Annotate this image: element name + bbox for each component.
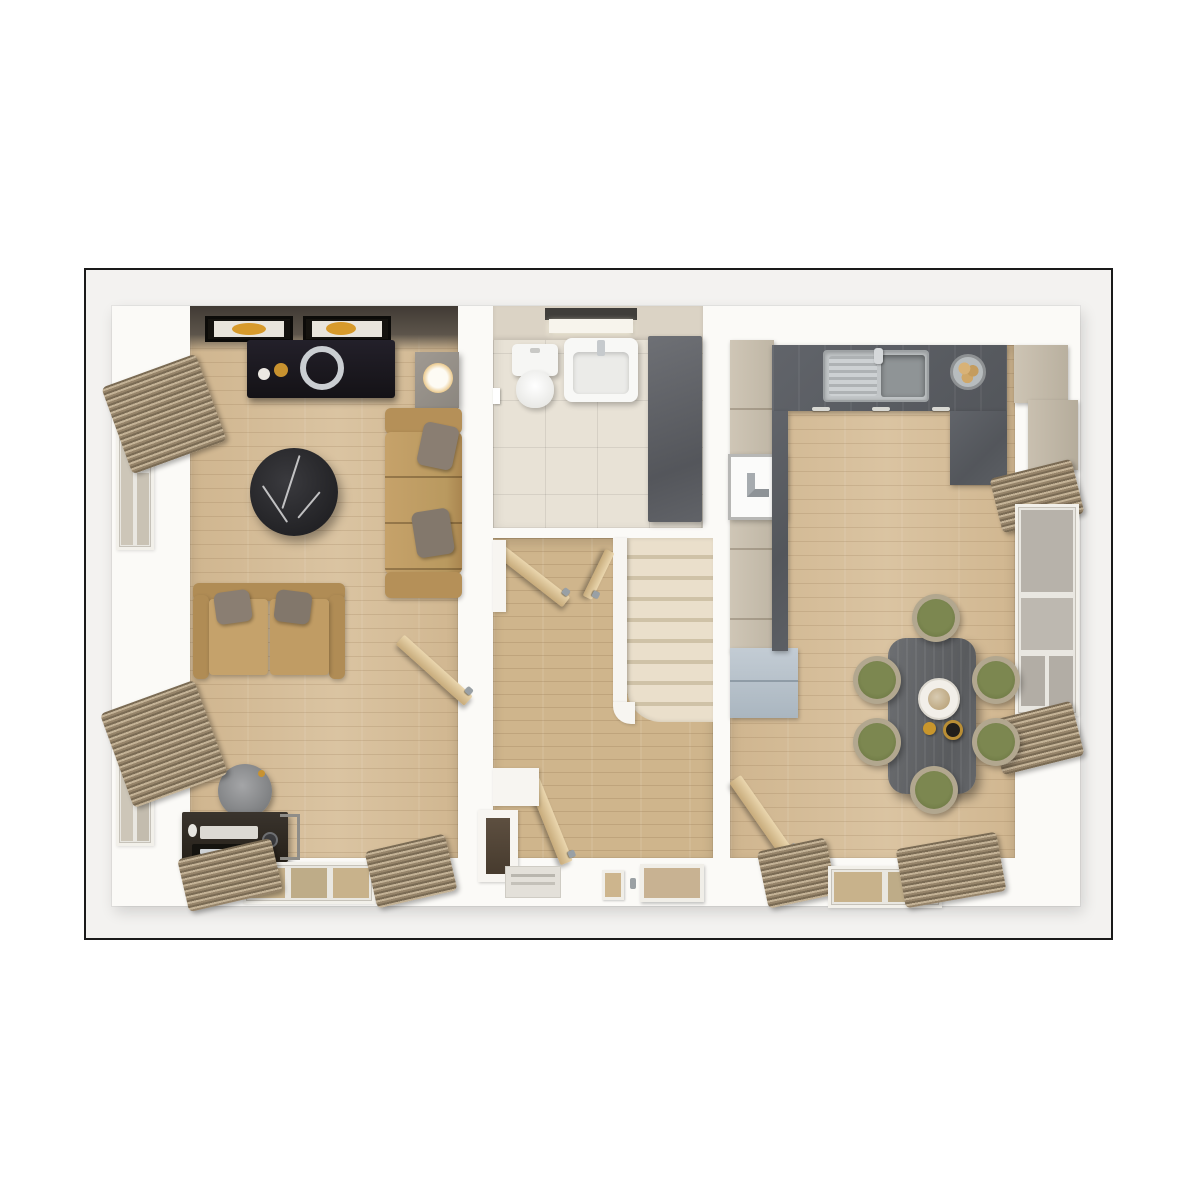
sink-basin (881, 355, 925, 397)
worktop-right-return (950, 411, 1007, 485)
wall-cabinet-upper (1014, 345, 1068, 403)
kitchen-sink (823, 350, 929, 402)
hall-wall-stub-lower (493, 768, 539, 806)
worktop-left-strip (772, 411, 788, 651)
picture-frame-left (205, 316, 293, 342)
picture-mat (312, 321, 382, 337)
toilet-bowl (516, 370, 554, 408)
sofa-pillow (411, 507, 456, 558)
plate-with-food (918, 678, 960, 720)
picture-frame-right (303, 316, 391, 342)
screenshot-canvas (0, 0, 1200, 1200)
decor-candle-gold (274, 363, 288, 377)
picture-art-gold (326, 322, 356, 335)
floor-plan (112, 306, 1080, 906)
window-right-wall (1015, 504, 1079, 716)
loveseat-sofa (193, 583, 345, 679)
chair-seat (858, 723, 896, 761)
cabinet-handle (872, 407, 890, 411)
mouse (188, 824, 197, 837)
mat-line (511, 874, 555, 877)
blue-gray-base-cabinet (730, 648, 798, 718)
loveseat-armrest (193, 595, 209, 679)
picture-mat (214, 321, 284, 337)
flush-button (530, 348, 540, 353)
cabinet-handle (932, 407, 950, 411)
fruit-bowl (950, 354, 986, 390)
dining-chair-right-1 (972, 656, 1020, 704)
loveseat-armrest (329, 595, 345, 679)
window-pane (137, 473, 149, 545)
decor-ring (300, 346, 344, 390)
monitor-flat (200, 826, 258, 839)
dark-jar (943, 720, 963, 740)
chair-seat (917, 599, 955, 637)
basin-tap (597, 340, 605, 356)
basin-bowl (573, 352, 629, 394)
window-pane (1021, 656, 1045, 706)
window-pane (1021, 598, 1073, 650)
chair-seat (858, 661, 896, 699)
chair-gold-accent (258, 770, 265, 777)
cube-lamp (415, 352, 459, 408)
window-pane (834, 872, 882, 902)
sink-drainer (829, 356, 877, 396)
coffee-table (250, 448, 338, 536)
bathroom-door-handle (493, 388, 500, 404)
decor-candle-white (258, 368, 270, 380)
chair-seat (915, 771, 953, 809)
window-pane (333, 868, 369, 898)
window-pane (291, 868, 327, 898)
media-console (247, 340, 395, 398)
dining-chair-right-2 (972, 718, 1020, 766)
loveseat-pillow (213, 589, 253, 626)
ceiling-light-diffuser (549, 319, 633, 333)
front-door-handle (630, 878, 636, 889)
gold-candle (923, 722, 936, 735)
cabinet-seam (730, 680, 798, 682)
window-pane (1021, 510, 1073, 592)
shower-glass-panel (648, 336, 702, 522)
staircase (627, 538, 713, 722)
lamp-glow (423, 363, 453, 393)
cabinet-handle (812, 407, 830, 411)
sink-tap (874, 348, 883, 364)
outer-frame (84, 268, 1113, 940)
chair-seat (977, 661, 1015, 699)
hob-icon (747, 473, 769, 497)
dining-chair-left-2 (853, 718, 901, 766)
dining-chair-bottom (910, 766, 958, 814)
food (928, 688, 950, 710)
dining-chair-left-1 (853, 656, 901, 704)
chair-seat (977, 723, 1015, 761)
wall-cabinet-lower (1028, 400, 1078, 470)
loveseat-pillow (273, 589, 313, 625)
wash-basin (564, 338, 638, 402)
front-door-glazed-panel-small (602, 870, 624, 900)
door-handle (464, 686, 474, 696)
hall-wall-stub-upper (493, 540, 506, 612)
stair-stringer-wall (613, 538, 627, 710)
window-pane (1049, 656, 1073, 706)
corner-sofa-armrest-bottom (385, 572, 462, 598)
marble-vein (281, 455, 300, 509)
front-door-glazed-panel-large (640, 864, 704, 902)
mat-line (511, 882, 555, 885)
marble-vein (297, 491, 320, 518)
entry-step-mat (505, 866, 561, 898)
dining-chair-top (912, 594, 960, 642)
desk-metal-frame (280, 814, 300, 860)
picture-art-gold (232, 323, 266, 335)
